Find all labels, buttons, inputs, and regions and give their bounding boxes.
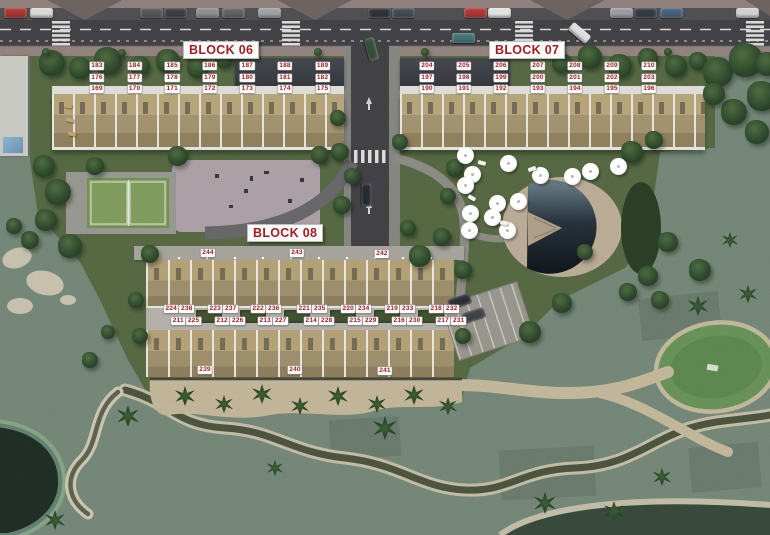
unit-label-pair: 222236: [251, 305, 281, 313]
unit-label-pair: 224238: [164, 305, 194, 313]
unit-label-pair: 217231: [436, 317, 466, 325]
unit-label[interactable]: 180: [240, 74, 254, 82]
unit-label[interactable]: 178: [165, 74, 179, 82]
unit-label[interactable]: 188: [278, 62, 292, 70]
unit-label-pair: 213227: [258, 317, 288, 325]
unit-label[interactable]: 239: [198, 366, 212, 374]
unit-label[interactable]: 193: [531, 85, 545, 93]
unit-label[interactable]: 238: [180, 305, 194, 313]
unit-label[interactable]: 229: [364, 317, 378, 325]
unit-label[interactable]: 186: [203, 62, 217, 70]
unit-label[interactable]: 176: [90, 74, 104, 82]
unit-label[interactable]: 219: [385, 305, 399, 313]
unit-label[interactable]: 210: [642, 62, 656, 70]
unit-label-pair: 218232: [429, 305, 459, 313]
unit-label[interactable]: 175: [315, 85, 329, 93]
block-08-label[interactable]: BLOCK 08: [247, 224, 323, 242]
unit-label[interactable]: 198: [457, 74, 471, 82]
unit-label[interactable]: 237: [224, 305, 238, 313]
unit-label[interactable]: 208: [568, 62, 582, 70]
unit-label[interactable]: 199: [494, 74, 508, 82]
unit-label[interactable]: 244: [201, 249, 215, 257]
unit-label[interactable]: 223: [208, 305, 222, 313]
unit-label[interactable]: 234: [357, 305, 371, 313]
unit-label-pair: 221235: [297, 305, 327, 313]
unit-label[interactable]: 222: [251, 305, 265, 313]
unit-label[interactable]: 231: [452, 317, 466, 325]
unit-label[interactable]: 177: [127, 74, 141, 82]
unit-label[interactable]: 192: [494, 85, 508, 93]
unit-label-pair: 223237: [208, 305, 238, 313]
unit-label[interactable]: 224: [164, 305, 178, 313]
unit-label-pair: 215229: [348, 317, 378, 325]
unit-label-pair: 214228: [304, 317, 334, 325]
unit-label-pair: 219233: [385, 305, 415, 313]
unit-label[interactable]: 174: [278, 85, 292, 93]
block-06-label[interactable]: BLOCK 06: [183, 41, 259, 59]
unit-label[interactable]: 170: [127, 85, 141, 93]
unit-label[interactable]: 207: [531, 62, 545, 70]
unit-label[interactable]: 185: [165, 62, 179, 70]
unit-label[interactable]: 218: [429, 305, 443, 313]
unit-label[interactable]: 181: [278, 74, 292, 82]
unit-label[interactable]: 241: [378, 367, 392, 375]
unit-label[interactable]: 173: [240, 85, 254, 93]
unit-label[interactable]: 195: [605, 85, 619, 93]
unit-label[interactable]: 242: [375, 250, 389, 258]
unit-label[interactable]: 221: [297, 305, 311, 313]
unit-label[interactable]: 235: [313, 305, 327, 313]
unit-label[interactable]: 227: [274, 317, 288, 325]
unit-label-pair: 211225: [171, 317, 201, 325]
unit-label[interactable]: 190: [420, 85, 434, 93]
block-07-label[interactable]: BLOCK 07: [489, 41, 565, 59]
unit-label[interactable]: 203: [642, 74, 656, 82]
unit-label[interactable]: 200: [531, 74, 545, 82]
site-plan-aerial: BLOCK 06 BLOCK 07 BLOCK 08 1831841851861…: [0, 0, 770, 535]
unit-label-pair: 212226: [215, 317, 245, 325]
unit-label[interactable]: 215: [348, 317, 362, 325]
unit-label[interactable]: 232: [445, 305, 459, 313]
unit-label[interactable]: 206: [494, 62, 508, 70]
unit-label[interactable]: 172: [203, 85, 217, 93]
unit-label[interactable]: 196: [642, 85, 656, 93]
unit-label[interactable]: 225: [186, 317, 200, 325]
unit-label[interactable]: 236: [267, 305, 281, 313]
unit-label[interactable]: 202: [605, 74, 619, 82]
unit-label[interactable]: 213: [258, 317, 272, 325]
labels-layer: BLOCK 06 BLOCK 07 BLOCK 08 1831841851861…: [0, 0, 770, 535]
unit-label-pair: 220234: [341, 305, 371, 313]
unit-label[interactable]: 228: [320, 317, 334, 325]
unit-label[interactable]: 197: [420, 74, 434, 82]
unit-label[interactable]: 183: [90, 62, 104, 70]
unit-label[interactable]: 233: [401, 305, 415, 313]
unit-label[interactable]: 179: [203, 74, 217, 82]
unit-label[interactable]: 191: [457, 85, 471, 93]
unit-label[interactable]: 214: [304, 317, 318, 325]
unit-label[interactable]: 184: [127, 62, 141, 70]
unit-label[interactable]: 220: [341, 305, 355, 313]
unit-label[interactable]: 212: [215, 317, 229, 325]
unit-label[interactable]: 216: [392, 317, 406, 325]
unit-label[interactable]: 211: [171, 317, 185, 325]
unit-label[interactable]: 187: [240, 62, 254, 70]
unit-label[interactable]: 194: [568, 85, 582, 93]
unit-label[interactable]: 171: [165, 85, 179, 93]
unit-label[interactable]: 230: [408, 317, 422, 325]
unit-label[interactable]: 204: [420, 62, 434, 70]
unit-label[interactable]: 209: [605, 62, 619, 70]
unit-label-pair: 216230: [392, 317, 422, 325]
unit-label[interactable]: 243: [290, 249, 304, 257]
unit-label[interactable]: 205: [457, 62, 471, 70]
unit-label[interactable]: 240: [288, 366, 302, 374]
unit-label[interactable]: 169: [90, 85, 104, 93]
unit-label[interactable]: 182: [315, 74, 329, 82]
unit-label[interactable]: 217: [436, 317, 450, 325]
unit-label[interactable]: 226: [231, 317, 245, 325]
unit-label[interactable]: 189: [315, 62, 329, 70]
unit-label[interactable]: 201: [568, 74, 582, 82]
